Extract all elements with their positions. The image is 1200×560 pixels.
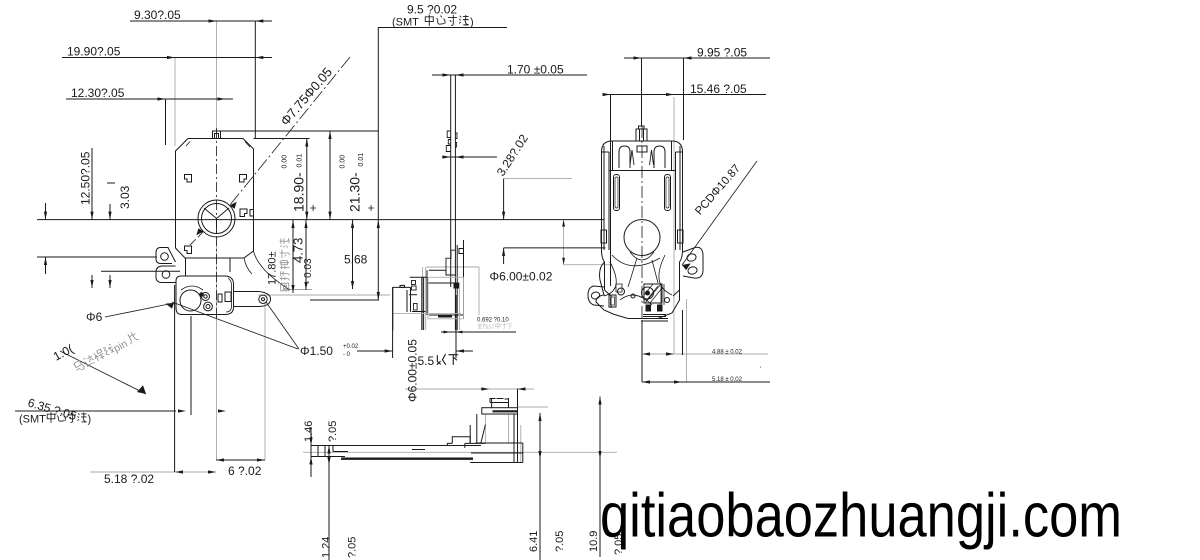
svg-text:?.05: ?.05 [327,421,339,442]
svg-text:1.70 ±0.05: 1.70 ±0.05 [507,63,564,77]
svg-text:18.90-: 18.90- [291,172,307,212]
svg-text:pin: pin [112,338,130,355]
svg-text:?.05: ?.05 [347,537,359,558]
svg-text:5.68: 5.68 [344,253,368,267]
svg-text:qitiaobaozhuangji.com: qitiaobaozhuangji.com [600,482,1122,551]
svg-text:9.5 ?0.02: 9.5 ?0.02 [407,3,457,17]
svg-text:12.50?.05: 12.50?.05 [79,151,93,205]
svg-text:1.46: 1.46 [303,421,315,442]
svg-text:3.03: 3.03 [118,185,132,209]
svg-text:0.692 ?0.10: 0.692 ?0.10 [477,318,509,324]
svg-text:+0.02: +0.02 [343,344,359,350]
svg-text:+: + [364,204,378,211]
svg-text:3.28?.02: 3.28?.02 [494,132,531,179]
svg-text:0.01: 0.01 [297,154,304,168]
svg-text:6.41: 6.41 [528,531,540,552]
svg-text:(SMT: (SMT [19,414,46,426]
svg-text:(SMT: (SMT [392,17,419,29]
svg-text:Φ1.50: Φ1.50 [300,344,333,358]
svg-text:9.95 ?.05: 9.95 ?.05 [697,46,747,60]
svg-text:15.46 ?.05: 15.46 ?.05 [690,82,747,96]
svg-text:?.05: ?.05 [554,531,566,552]
svg-text:9.30?.05: 9.30?.05 [134,8,181,22]
svg-text:Φ6.00±0.02: Φ6.00±0.02 [490,270,553,284]
svg-text:): ) [88,414,92,426]
svg-text:Φ7.75Φ0.05: Φ7.75Φ0.05 [277,64,335,128]
svg-text:6 ?.02: 6 ?.02 [228,464,262,478]
svg-text:17.80±: 17.80± [267,251,279,285]
svg-text:': ' [760,367,761,373]
svg-text:21.30-: 21.30- [347,172,363,212]
svg-text:5.18 ± 0.02: 5.18 ± 0.02 [712,377,743,383]
svg-text:5.18 ?.02: 5.18 ?.02 [104,472,154,486]
svg-text:1.0(: 1.0( [51,342,76,364]
svg-text:1.24: 1.24 [321,537,333,558]
svg-text:): ) [470,17,474,29]
svg-text:- 0.03: - 0.03 [303,258,314,284]
svg-text:0.00: 0.00 [282,155,289,169]
svg-text:10.9: 10.9 [588,531,600,552]
svg-text:+: + [306,204,320,211]
svg-text:0.01: 0.01 [358,153,365,167]
svg-text:Φ6: Φ6 [86,310,103,324]
svg-text:- 0: - 0 [343,352,351,358]
svg-text:0.00: 0.00 [340,155,347,169]
svg-text:19.90?.05: 19.90?.05 [67,45,121,59]
svg-text:Φ6.00±0.05: Φ6.00±0.05 [406,339,420,402]
svg-text:5.5: 5.5 [418,354,435,368]
svg-text:4.88 ± 0.02: 4.88 ± 0.02 [712,350,743,356]
svg-text:12.30?.05: 12.30?.05 [71,86,125,100]
